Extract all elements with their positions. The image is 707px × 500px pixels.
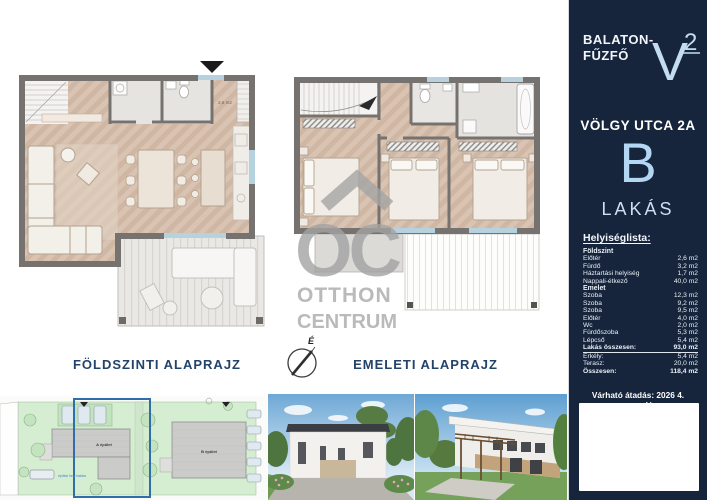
- roomlist-row: Terasz:20,0 m2: [583, 360, 698, 367]
- main-area: 2,6 m2: [0, 0, 567, 500]
- console-table: [42, 114, 102, 122]
- unit-type: LAKÁS: [569, 199, 707, 220]
- kitchen-counter: [233, 126, 250, 220]
- bed-middle: [381, 154, 439, 220]
- utility-washer: [113, 81, 127, 95]
- roomlist-row: Szoba9,5 m2: [583, 307, 698, 314]
- site-carport: [58, 404, 112, 426]
- property-sheet: 2,6 m2: [0, 0, 707, 500]
- bath-washer: [463, 120, 476, 133]
- roof-terrace: [405, 234, 539, 310]
- brand-line2: FŰZFŐ: [583, 48, 654, 64]
- site-plan: A épület B épület: [0, 396, 267, 500]
- balcony: [315, 234, 403, 272]
- roomlist-title: Helyiséglista:: [583, 232, 651, 244]
- roomlist-row: Összesen:118,4 m2: [583, 368, 698, 375]
- upper-floorplan: [287, 58, 545, 343]
- site-walkway: [135, 402, 143, 495]
- terrace-table: [201, 287, 223, 309]
- compass-icon: É: [283, 334, 323, 382]
- house: [286, 424, 390, 478]
- entrance-arrow-icon: [200, 61, 224, 73]
- entry-area-label: 2,6 m2: [218, 100, 232, 105]
- roomlist-row: Előtér2,6 m2: [583, 255, 698, 262]
- roomlist-row: Előtér4,0 m2: [583, 315, 698, 322]
- compass-north-label: É: [308, 336, 315, 346]
- svg-text:2: 2: [684, 29, 697, 56]
- boundary-note: építési hely határa: [58, 474, 86, 478]
- building-a-label: A épület: [96, 442, 112, 447]
- bath-sink: [463, 83, 479, 92]
- ground-plan-label: FÖLDSZINTI ALAPRAJZ: [48, 357, 266, 372]
- site-road: [0, 402, 18, 495]
- bed-left: [299, 147, 359, 226]
- brand-name: BALATON- FŰZFŐ: [583, 32, 654, 64]
- roomlist-row: Lakás összesen:93,0 m2: [583, 344, 698, 353]
- entry-wardrobe: [237, 80, 250, 122]
- roomlist-row: Erkély:5,4 m2: [583, 353, 698, 360]
- ground-floorplan: 2,6 m2: [12, 58, 270, 343]
- roomlist-row: Emelet: [583, 285, 698, 292]
- roomlist-row: Wc2,0 m2: [583, 322, 698, 329]
- roomlist-row: Háztartási helyiség1,7 m2: [583, 270, 698, 277]
- notes-box: [579, 403, 699, 491]
- sidebar: BALATON- FŰZFŐ V 2 VÖLGY UTCA 2A B LAKÁS…: [568, 0, 707, 500]
- roomlist-row: Fürdőszoba5,3 m2: [583, 329, 698, 336]
- stairs: [299, 82, 377, 116]
- bed-right: [463, 154, 537, 220]
- upper-plan-label: EMELETI ALAPRAJZ: [338, 357, 513, 372]
- roomlist-row: Lépcső5,4 m2: [583, 337, 698, 344]
- side-table: [61, 148, 75, 162]
- photo-garden-view: [415, 394, 567, 500]
- building-b-label: B épület: [201, 449, 217, 454]
- roomlist-row: Szoba9,2 m2: [583, 300, 698, 307]
- roomlist-row: Nappali-étkező40,0 m2: [583, 278, 698, 285]
- roomlist-row: Földszint: [583, 248, 698, 255]
- site-car: [30, 470, 54, 479]
- v2-logo-icon: V 2: [650, 28, 702, 88]
- roomlist-row: Szoba12,3 m2: [583, 292, 698, 299]
- terrace-pouf: [163, 301, 177, 315]
- dining-set: [126, 150, 186, 208]
- roomlist-row: Fürdő3,2 m2: [583, 263, 698, 270]
- terrace: [118, 236, 264, 326]
- unit-letter: B: [569, 130, 707, 195]
- photo-front-view: [268, 394, 414, 500]
- bathtub: [517, 84, 534, 134]
- room-list: FöldszintElőtér2,6 m2Fürdő3,2 m2Háztartá…: [583, 248, 698, 375]
- svg-text:V: V: [652, 32, 688, 88]
- brand-line1: BALATON-: [583, 32, 654, 48]
